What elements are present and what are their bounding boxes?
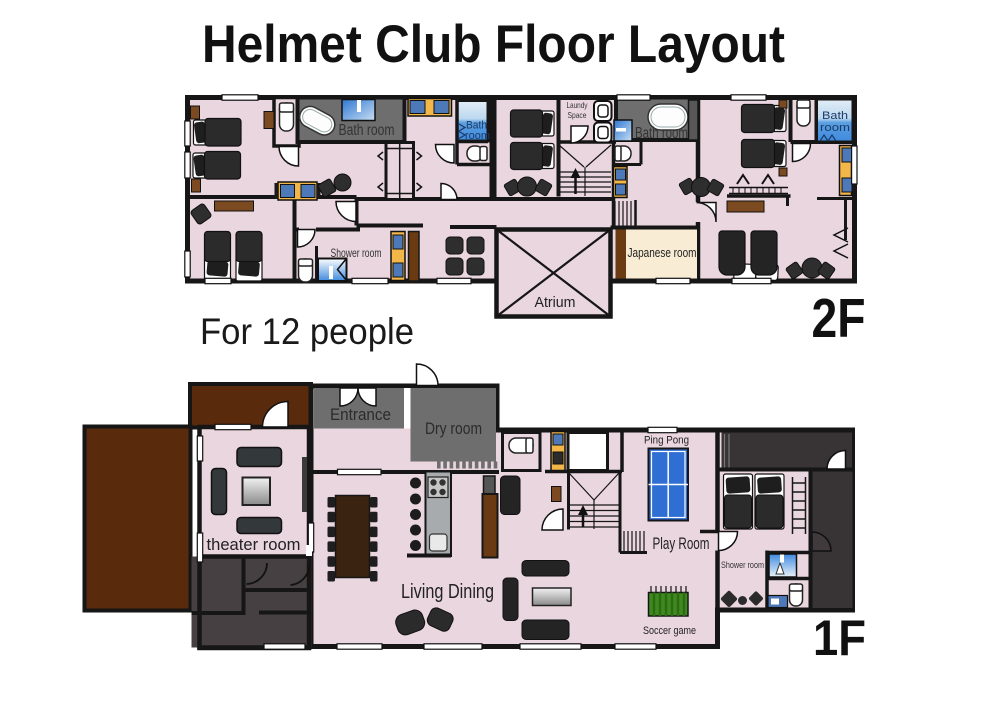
svg-text:Ping Pong: Ping Pong <box>644 435 689 447</box>
svg-text:room: room <box>820 122 850 134</box>
svg-text:Bath room: Bath room <box>339 122 395 139</box>
svg-text:Shower room: Shower room <box>721 560 764 571</box>
svg-text:2F: 2F <box>812 287 866 349</box>
svg-text:Space: Space <box>568 110 587 120</box>
svg-text:For 12 people: For 12 people <box>200 311 414 352</box>
svg-text:Laundy: Laundy <box>567 100 589 110</box>
svg-text:Soccer game: Soccer game <box>643 625 696 637</box>
svg-text:Living Dining: Living Dining <box>401 581 494 603</box>
svg-text:Atrium: Atrium <box>535 294 576 311</box>
svg-text:Bath room: Bath room <box>635 125 688 142</box>
svg-text:Japanese room: Japanese room <box>628 245 697 260</box>
svg-text:Play Room: Play Room <box>653 534 710 553</box>
svg-text:theater room: theater room <box>207 535 301 554</box>
svg-text:Helmet Club Floor Layout: Helmet Club Floor Layout <box>202 15 785 74</box>
svg-text:Dry room: Dry room <box>425 419 482 438</box>
svg-text:Entrance: Entrance <box>330 405 391 424</box>
svg-text:1F: 1F <box>813 610 866 666</box>
svg-text:Bath: Bath <box>822 110 848 122</box>
